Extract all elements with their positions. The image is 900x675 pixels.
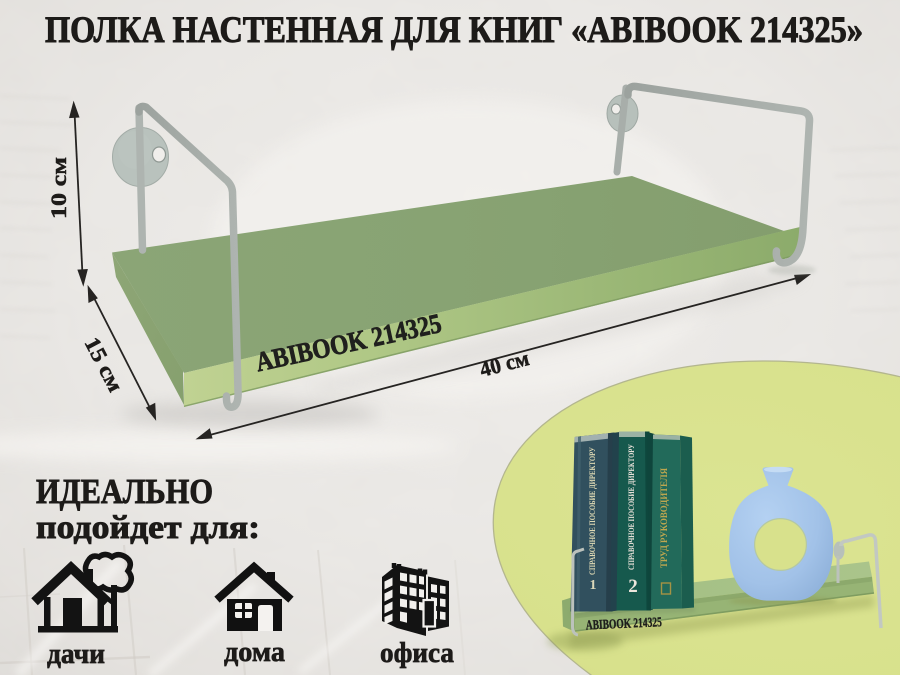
svg-text:ТРУД РУКОВОДИТЕЛЯ: ТРУД РУКОВОДИТЕЛЯ xyxy=(659,468,669,568)
svg-text:дачи: дачи xyxy=(47,638,105,670)
svg-text:СПРАВОЧНОЕ ПОСОБИЕ ДИРЕКТОРУ: СПРАВОЧНОЕ ПОСОБИЕ ДИРЕКТОРУ xyxy=(627,444,636,570)
svg-text:дома: дома xyxy=(224,636,285,668)
svg-text:2: 2 xyxy=(628,576,638,597)
svg-text:офиса: офиса xyxy=(380,637,454,669)
svg-text:подойдет для:: подойдет для: xyxy=(36,510,260,546)
svg-text:1: 1 xyxy=(590,578,597,593)
svg-text:ИДЕАЛЬНО: ИДЕАЛЬНО xyxy=(36,472,213,511)
svg-text:ПОЛКА НАСТЕННАЯ ДЛЯ КНИГ «ABIB: ПОЛКА НАСТЕННАЯ ДЛЯ КНИГ «ABIBOOK 214325… xyxy=(45,9,863,50)
svg-text:СПРАВОЧНОЕ ПОСОБИЕ ДИРЕКТОРУ: СПРАВОЧНОЕ ПОСОБИЕ ДИРЕКТОРУ xyxy=(588,447,597,575)
svg-text:10 см: 10 см xyxy=(46,157,71,219)
